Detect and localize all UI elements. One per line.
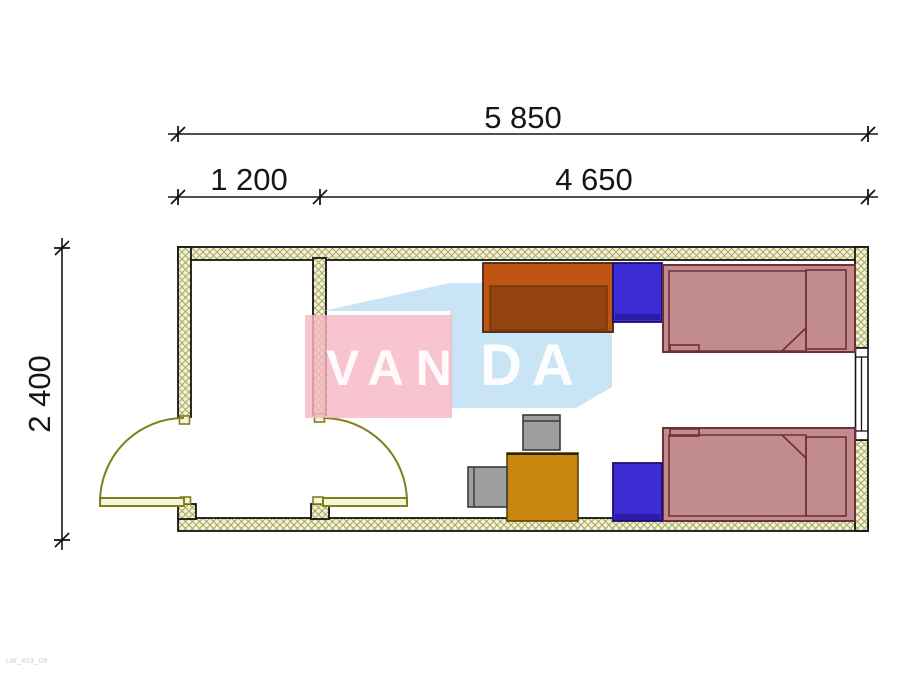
wall-right-upper	[855, 247, 868, 348]
floor-plan-page: { "title": "Container cabin floor plan 5…	[0, 0, 924, 700]
dim-label-left-segment: 1 200	[210, 162, 288, 197]
entrance-door-swing-arc	[100, 418, 184, 502]
nightstand-body	[613, 263, 662, 322]
dimension-depth: 2 400	[22, 238, 70, 550]
floor-plan-drawing: 5 850 1 200 4 650 2 400	[0, 0, 924, 700]
chair-top	[523, 415, 560, 450]
nightstand-body	[613, 463, 662, 521]
corner-note: LW_403_08	[6, 658, 48, 665]
bed-bottom	[663, 428, 855, 521]
table	[507, 453, 578, 521]
floor-plan-canvas: 5 850 1 200 4 650 2 400	[0, 0, 924, 700]
entrance-door-leaf	[100, 498, 184, 506]
dim-label-depth: 2 400	[22, 355, 57, 433]
wardrobe	[483, 263, 613, 332]
chair-left	[468, 467, 507, 507]
nightstand-top	[613, 263, 662, 322]
dim-label-total-width: 5 850	[484, 100, 562, 135]
bed-body	[663, 428, 855, 521]
dimension-total-width: 5 850	[168, 100, 878, 142]
bed-top	[663, 265, 855, 352]
entrance-door	[100, 416, 191, 506]
door-frame-cap	[313, 497, 323, 504]
dimension-segments: 1 200 4 650	[168, 162, 878, 205]
bed-body	[663, 265, 855, 352]
wardrobe-inner-shade	[490, 286, 607, 330]
interior-door-leaf	[323, 498, 407, 506]
nightstand-bottom	[613, 463, 662, 521]
watermark-text-da: DA	[480, 333, 584, 398]
dim-label-right-segment: 4 650	[555, 162, 633, 197]
interior-door-swing-arc	[323, 418, 407, 502]
window	[856, 348, 869, 440]
nightstand-shade	[615, 514, 660, 520]
interior-door	[313, 414, 407, 506]
watermark-text-van: VAN	[326, 340, 464, 396]
chair-seat	[523, 415, 560, 450]
table-group	[507, 453, 578, 521]
nightstand-shade	[615, 314, 660, 320]
wall-top	[178, 247, 868, 260]
wall-right-lower	[855, 440, 868, 531]
wall-left	[178, 247, 191, 417]
